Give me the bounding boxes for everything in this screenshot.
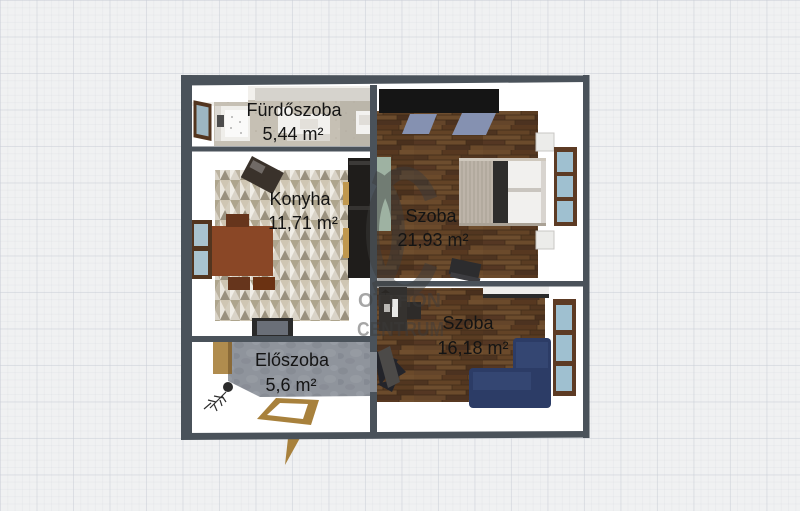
svg-text:16,18 m²: 16,18 m²	[437, 338, 508, 358]
svg-text:Előszoba: Előszoba	[255, 350, 330, 370]
svg-text:5,44 m²: 5,44 m²	[262, 124, 323, 144]
svg-text:Szoba: Szoba	[405, 206, 457, 226]
svg-text:5,6 m²: 5,6 m²	[265, 375, 316, 395]
svg-text:CENTRUM: CENTRUM	[357, 318, 444, 341]
svg-text:Szoba: Szoba	[442, 313, 494, 333]
svg-text:Konyha: Konyha	[269, 189, 331, 209]
svg-text:OTTHON: OTTHON	[358, 289, 441, 312]
svg-text:21,93 m²: 21,93 m²	[397, 230, 468, 250]
svg-text:11,71 m²: 11,71 m²	[268, 213, 338, 233]
svg-text:Fürdőszoba: Fürdőszoba	[246, 100, 342, 120]
